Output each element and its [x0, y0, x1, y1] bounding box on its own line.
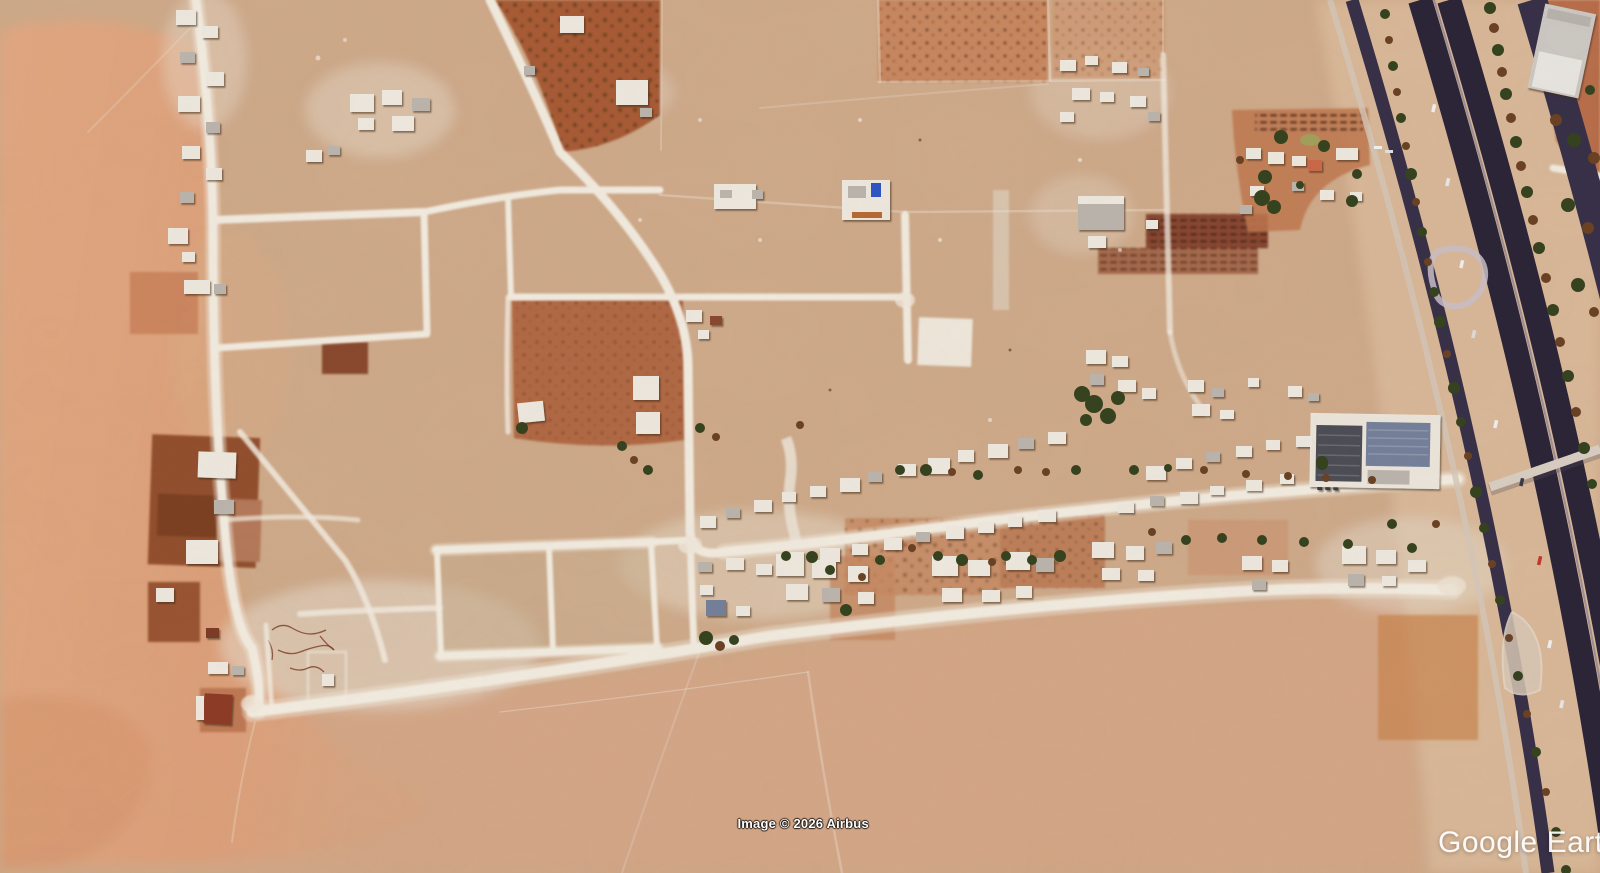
grain-overlay	[0, 0, 1600, 873]
google-earth-watermark: Google Earth	[1438, 826, 1600, 860]
imagery-attribution: Image © 2026 Airbus	[737, 816, 868, 831]
satellite-imagery	[0, 0, 1600, 873]
google-earth-viewport[interactable]: Image © 2026 Airbus Google Earth	[0, 0, 1600, 873]
